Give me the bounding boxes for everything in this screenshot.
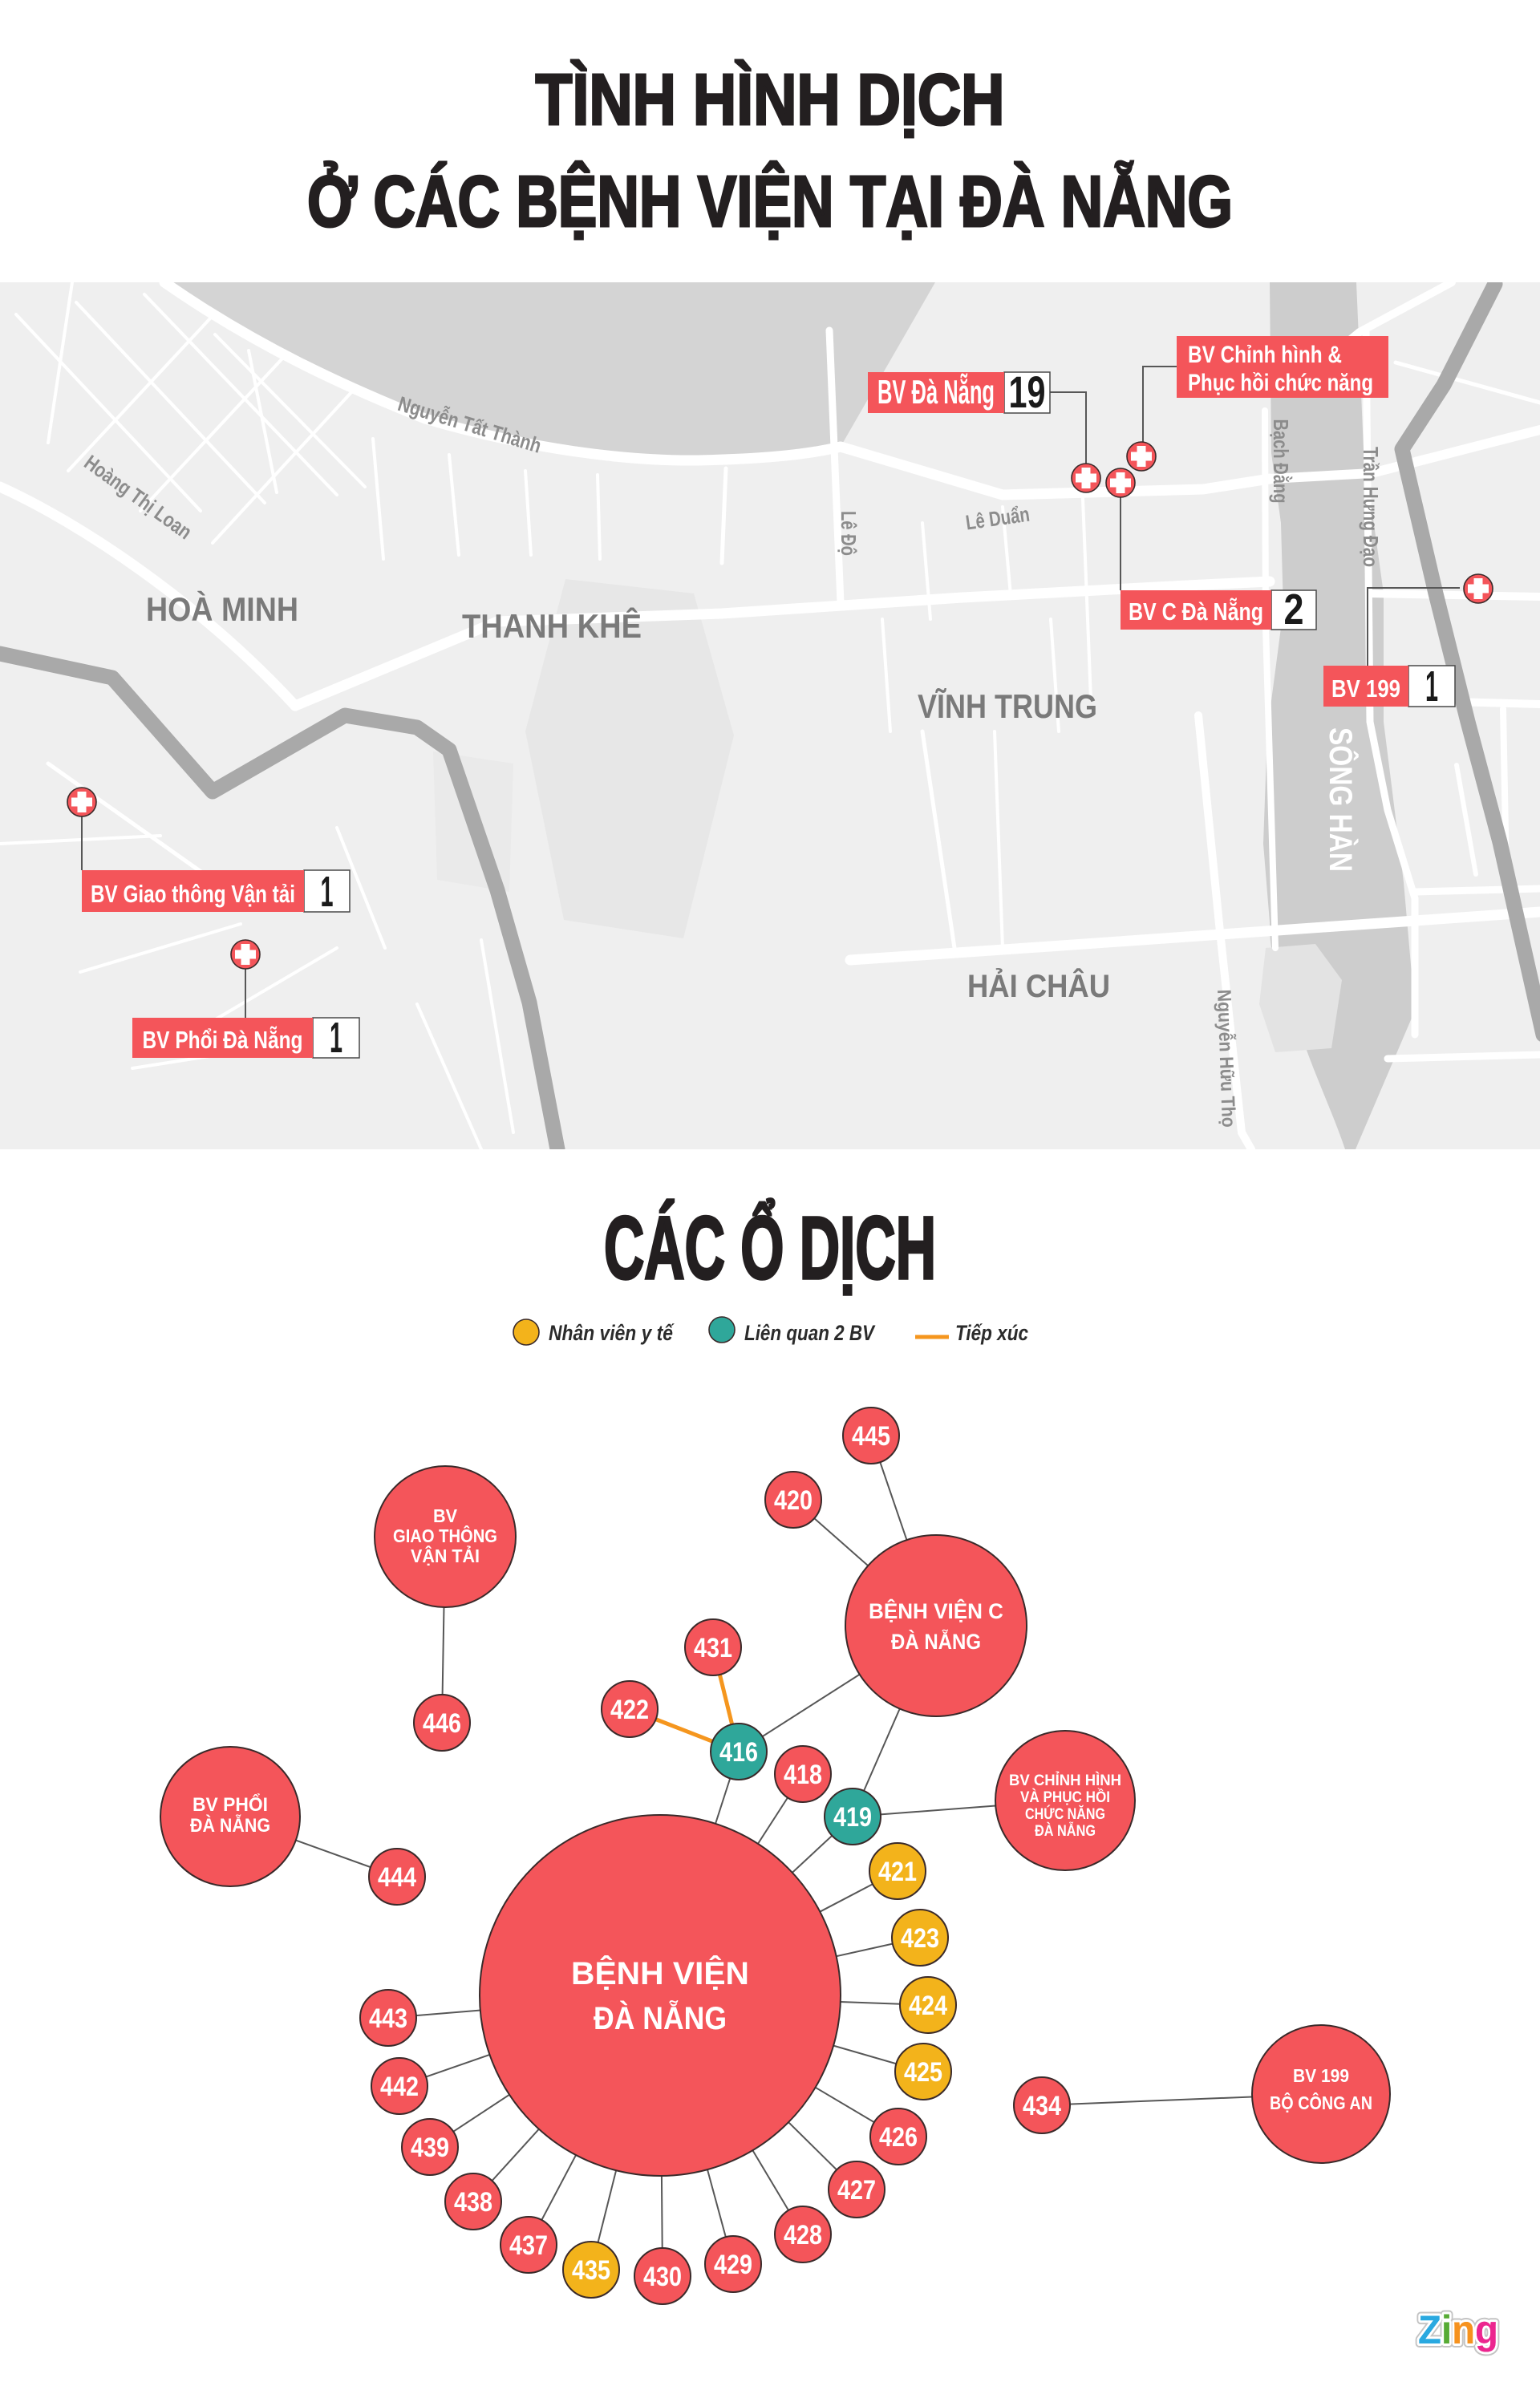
svg-text:Zing: Zing — [1418, 2307, 1498, 2352]
svg-text:BV Phổi Đà Nẵng: BV Phổi Đà Nẵng — [143, 1025, 303, 1054]
svg-text:Phục hồi chức năng: Phục hồi chức năng — [1188, 370, 1373, 396]
svg-text:1: 1 — [1425, 662, 1438, 711]
svg-text:HOÀ MINH: HOÀ MINH — [146, 590, 298, 628]
svg-text:419: 419 — [833, 1802, 872, 1833]
svg-text:431: 431 — [694, 1633, 732, 1663]
svg-text:Lê Độ: Lê Độ — [837, 511, 861, 556]
svg-text:CÁC Ổ DỊCH: CÁC Ổ DỊCH — [604, 1199, 936, 1298]
svg-text:BV PHỔI: BV PHỔI — [192, 1793, 268, 1816]
svg-text:445: 445 — [852, 1421, 890, 1452]
svg-text:444: 444 — [378, 1862, 416, 1893]
svg-text:420: 420 — [774, 1485, 813, 1516]
svg-text:BV Giao thông Vận tải: BV Giao thông Vận tải — [91, 880, 295, 908]
svg-text:Bạch Đằng: Bạch Đằng — [1269, 419, 1293, 504]
svg-text:ĐÀ NẴNG: ĐÀ NẴNG — [891, 1628, 981, 1654]
svg-text:BV 199: BV 199 — [1331, 674, 1400, 703]
svg-text:BV Chỉnh hình &: BV Chỉnh hình & — [1188, 342, 1342, 368]
svg-text:1: 1 — [330, 1014, 342, 1062]
svg-text:418: 418 — [784, 1760, 822, 1790]
svg-text:ĐÀ NẴNG: ĐÀ NẴNG — [1035, 1822, 1096, 1840]
svg-text:VẬN TẢI: VẬN TẢI — [411, 1544, 480, 1566]
svg-text:19: 19 — [1009, 367, 1046, 417]
svg-text:HẢI CHÂU: HẢI CHÂU — [967, 967, 1110, 1004]
svg-text:VÀ PHỤC HỒI: VÀ PHỤC HỒI — [1020, 1788, 1110, 1806]
svg-text:425: 425 — [904, 2057, 942, 2088]
svg-text:BV 199: BV 199 — [1293, 2065, 1349, 2086]
svg-text:443: 443 — [369, 2003, 407, 2034]
svg-text:424: 424 — [909, 1991, 947, 2021]
svg-text:ĐÀ NẴNG: ĐÀ NẴNG — [190, 1814, 270, 1837]
svg-text:BV Đà Nẵng: BV Đà Nẵng — [877, 372, 995, 411]
svg-text:Ở CÁC BỆNH VIỆN TẠI ĐÀ NẴNG: Ở CÁC BỆNH VIỆN TẠI ĐÀ NẴNG — [307, 160, 1233, 242]
svg-text:434: 434 — [1023, 2091, 1061, 2121]
svg-text:GIAO THÔNG: GIAO THÔNG — [393, 1525, 497, 1546]
svg-text:430: 430 — [643, 2262, 682, 2292]
svg-text:437: 437 — [509, 2230, 548, 2261]
svg-text:BV CHỈNH HÌNH: BV CHỈNH HÌNH — [1009, 1772, 1121, 1789]
svg-text:CHỨC NĂNG: CHỨC NĂNG — [1025, 1805, 1105, 1823]
svg-text:Liên quan 2 BV: Liên quan 2 BV — [744, 1321, 876, 1345]
svg-text:Nhân viên y tế: Nhân viên y tế — [549, 1321, 675, 1345]
svg-text:422: 422 — [610, 1695, 649, 1725]
svg-text:429: 429 — [714, 2250, 752, 2280]
svg-text:416: 416 — [719, 1737, 758, 1768]
svg-text:BV C Đà Nẵng: BV C Đà Nẵng — [1129, 597, 1263, 626]
svg-text:BV: BV — [433, 1505, 458, 1526]
svg-text:439: 439 — [411, 2133, 449, 2163]
svg-text:421: 421 — [878, 1857, 917, 1887]
svg-text:SÔNG HÀN: SÔNG HÀN — [1323, 727, 1360, 872]
svg-text:BỘ CÔNG AN: BỘ CÔNG AN — [1270, 2092, 1372, 2113]
svg-text:426: 426 — [879, 2122, 918, 2153]
svg-text:Tiếp xúc: Tiếp xúc — [955, 1321, 1028, 1345]
svg-text:Trần Hưng Đạo: Trần Hưng Đạo — [1359, 447, 1383, 567]
svg-text:VĨNH TRUNG: VĨNH TRUNG — [918, 687, 1097, 725]
svg-text:438: 438 — [454, 2187, 492, 2218]
svg-text:446: 446 — [423, 1708, 461, 1739]
svg-text:BỆNH VIỆN: BỆNH VIỆN — [571, 1955, 749, 1991]
svg-text:428: 428 — [784, 2220, 822, 2250]
svg-text:1: 1 — [321, 868, 334, 916]
svg-text:BỆNH VIỆN C: BỆNH VIỆN C — [869, 1598, 1003, 1623]
svg-text:THANH KHÊ: THANH KHÊ — [462, 606, 642, 645]
svg-text:TÌNH HÌNH DỊCH: TÌNH HÌNH DỊCH — [536, 59, 1005, 140]
svg-text:423: 423 — [901, 1923, 939, 1954]
svg-text:ĐÀ NẴNG: ĐÀ NẴNG — [594, 1999, 727, 2036]
svg-text:435: 435 — [572, 2255, 610, 2286]
svg-text:442: 442 — [380, 2072, 419, 2102]
svg-text:427: 427 — [837, 2175, 876, 2206]
svg-text:2: 2 — [1284, 585, 1304, 634]
